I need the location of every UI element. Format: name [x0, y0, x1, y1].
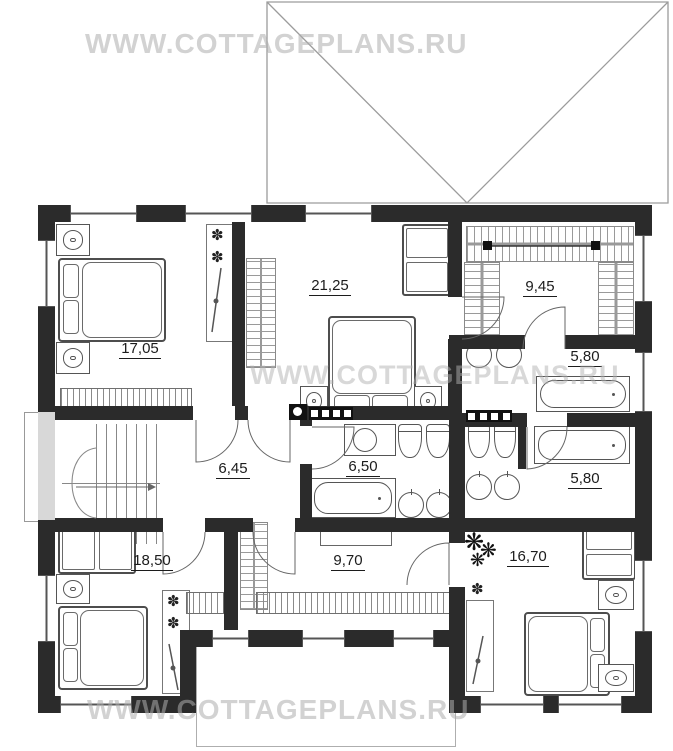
- radiator: [256, 592, 450, 614]
- double-bed: [58, 258, 166, 342]
- wardrobe-shelf: [466, 600, 494, 692]
- window-right-1: [635, 235, 652, 302]
- wall-baths-b: [567, 413, 635, 427]
- toilet: [398, 424, 422, 458]
- room-label-bathroom-right: 5,80: [557, 470, 613, 487]
- toilet: [426, 424, 450, 458]
- wall-hall-bath-stub: [300, 420, 312, 426]
- hanger-rack: [246, 258, 276, 368]
- watermark-top: WWW.COTTAGEPLANS.RU: [85, 28, 467, 60]
- wall-dressing-bath-a: [449, 335, 525, 349]
- window-top-2: [185, 205, 252, 222]
- room-label-bedroom-bottom-left: 18,50: [120, 552, 184, 569]
- wall-bath-partition: [518, 427, 526, 469]
- washbasin: [466, 474, 492, 500]
- washbasin: [494, 474, 520, 500]
- wall-dressing-bath-b: [565, 335, 635, 349]
- wall-bedroom3-corridor: [224, 518, 238, 632]
- room-label-bedroom-top-middle: 21,25: [300, 277, 360, 294]
- nightstand: [598, 580, 634, 610]
- hanger-rack: [466, 226, 634, 262]
- flower-icon: ✽: [167, 616, 180, 631]
- room-label-dressing-room: 9,45: [512, 278, 568, 295]
- room-label-hall: 6,45: [203, 460, 263, 477]
- sofa: [582, 524, 636, 580]
- window-corridor-3: [393, 630, 434, 647]
- wall-h2-c: [295, 518, 449, 532]
- window-bottom-right-2: [558, 696, 622, 713]
- wall-bedroom2-dressing-upper: [448, 222, 462, 297]
- staircase-mid-line: [62, 483, 160, 484]
- flower-icon: ✽: [211, 250, 224, 265]
- window-right-3: [635, 560, 652, 632]
- window-corridor-1: [212, 630, 249, 647]
- hanger-rack: [464, 262, 500, 336]
- room-label-corridor: 9,70: [318, 552, 378, 569]
- toilet: [468, 424, 490, 458]
- window-right-2: [635, 352, 652, 412]
- wall-hall-bath: [300, 464, 312, 518]
- window-left-2: [38, 575, 55, 642]
- wall-h2-a: [38, 518, 163, 532]
- wall-h1-b: [235, 406, 248, 420]
- toilet: [494, 424, 516, 458]
- window-top-1: [70, 205, 137, 222]
- hanger-rack: [598, 262, 634, 336]
- bathtub: [310, 478, 396, 518]
- stair-bay-wall: [38, 412, 55, 520]
- washbasin: [398, 492, 424, 518]
- wall-terrace-left: [180, 630, 196, 696]
- sofa: [402, 224, 452, 296]
- flower-icon: ✽: [211, 228, 224, 243]
- utility-box-icon: [289, 404, 307, 420]
- terrace: [196, 631, 456, 747]
- nightstand: [56, 224, 90, 256]
- bathtub: [534, 426, 630, 464]
- watermark-bottom: WWW.COTTAGEPLANS.RU: [87, 694, 469, 726]
- radiator: [186, 592, 224, 614]
- wall-h1-a: [55, 406, 193, 420]
- nightstand: [56, 342, 90, 374]
- wall-bedroom1-bedroom2: [232, 222, 245, 406]
- floor-plan: ✽ ✽ ✽ ✽ ❋ ❋: [0, 0, 673, 751]
- room-label-bedroom-bottom-right: 16,70: [496, 548, 560, 565]
- wall-h2-d: [449, 518, 635, 532]
- radiator: [60, 388, 192, 408]
- double-bed: [58, 606, 148, 690]
- wall-v2-lower-a: [449, 420, 465, 543]
- nightstand: [598, 664, 634, 692]
- flower-icon: ✽: [167, 594, 180, 609]
- vent-strip-icon: [466, 410, 512, 422]
- room-label-bathroom-middle: 6,50: [333, 458, 393, 475]
- window-top-3: [305, 205, 372, 222]
- vent-strip-icon: [309, 407, 353, 420]
- room-label-bedroom-top-left: 17,05: [110, 340, 170, 357]
- window-bottom-right-1: [480, 696, 544, 713]
- watermark-middle: WWW.COTTAGEPLANS.RU: [250, 360, 619, 391]
- window-corridor-2: [302, 630, 345, 647]
- flower-icon: ✽: [471, 582, 484, 597]
- nightstand: [56, 574, 90, 604]
- window-left-1: [38, 240, 55, 307]
- washbasin-counter: [344, 424, 396, 456]
